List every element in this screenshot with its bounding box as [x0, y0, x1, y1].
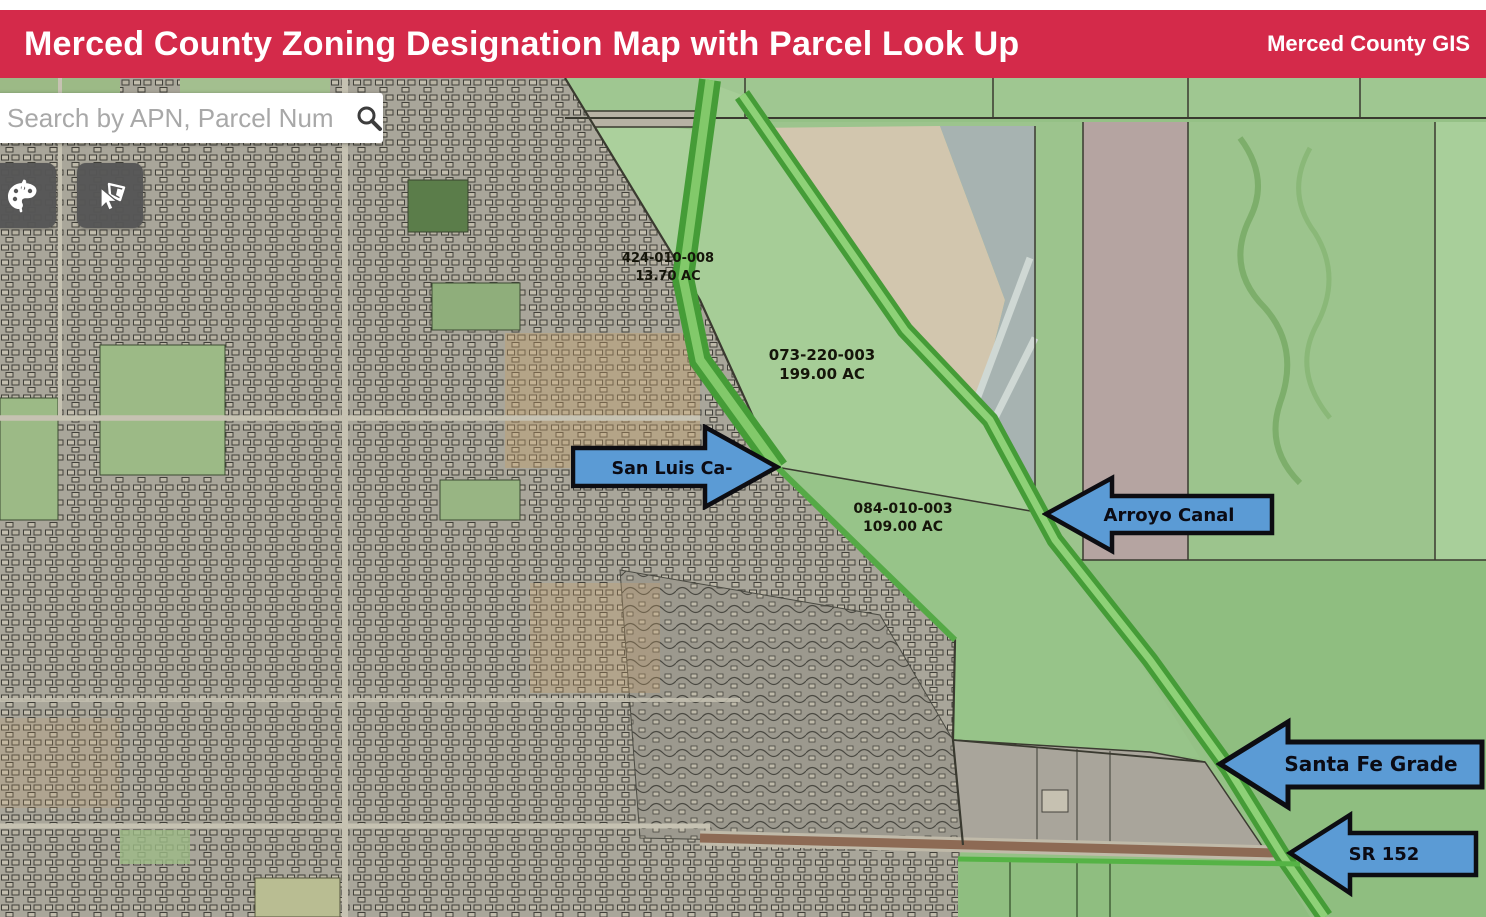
select-parcel-button[interactable] [77, 163, 143, 228]
parcel-apn: 424-010-008 [622, 250, 714, 268]
callout-arrow-santa-fe-grade: Santa Fe Grade [1216, 716, 1486, 813]
parcel-acres: 13.70 AC [622, 268, 714, 286]
parcel-search [0, 93, 383, 143]
parcel-apn: 084-010-003 [853, 500, 952, 518]
callout-arrow-sr-152: SR 152 [1286, 809, 1486, 899]
callout-arrow-arroyo-canal: Arroyo Canal [1042, 474, 1276, 556]
callout-label: Santa Fe Grade [1284, 752, 1457, 776]
parcel-label: 084-010-003 109.00 AC [853, 500, 952, 536]
app-header: Merced County Zoning Designation Map wit… [0, 10, 1486, 78]
parcel-apn: 073-220-003 [769, 346, 875, 365]
parcel-label: 424-010-008 13.70 AC [622, 250, 714, 286]
parcel-acres: 199.00 AC [769, 365, 875, 384]
page-title: Merced County Zoning Designation Map wit… [24, 25, 1019, 64]
parcel-label: 073-220-003 199.00 AC [769, 346, 875, 384]
select-parcel-icon [90, 176, 130, 216]
callout-label: SR 152 [1349, 844, 1420, 865]
palette-icon [3, 177, 41, 215]
search-icon [356, 105, 383, 132]
basemap-gallery-button[interactable] [0, 163, 56, 228]
search-button[interactable] [350, 93, 389, 143]
callout-arrow-san-luis-canal: San Luis Ca- [571, 424, 781, 510]
brand-label: Merced County GIS [1267, 31, 1474, 57]
callout-label: San Luis Ca- [612, 459, 733, 479]
search-input[interactable] [0, 93, 350, 143]
callout-label: Arroyo Canal [1104, 505, 1235, 526]
parcel-acres: 109.00 AC [853, 518, 952, 536]
